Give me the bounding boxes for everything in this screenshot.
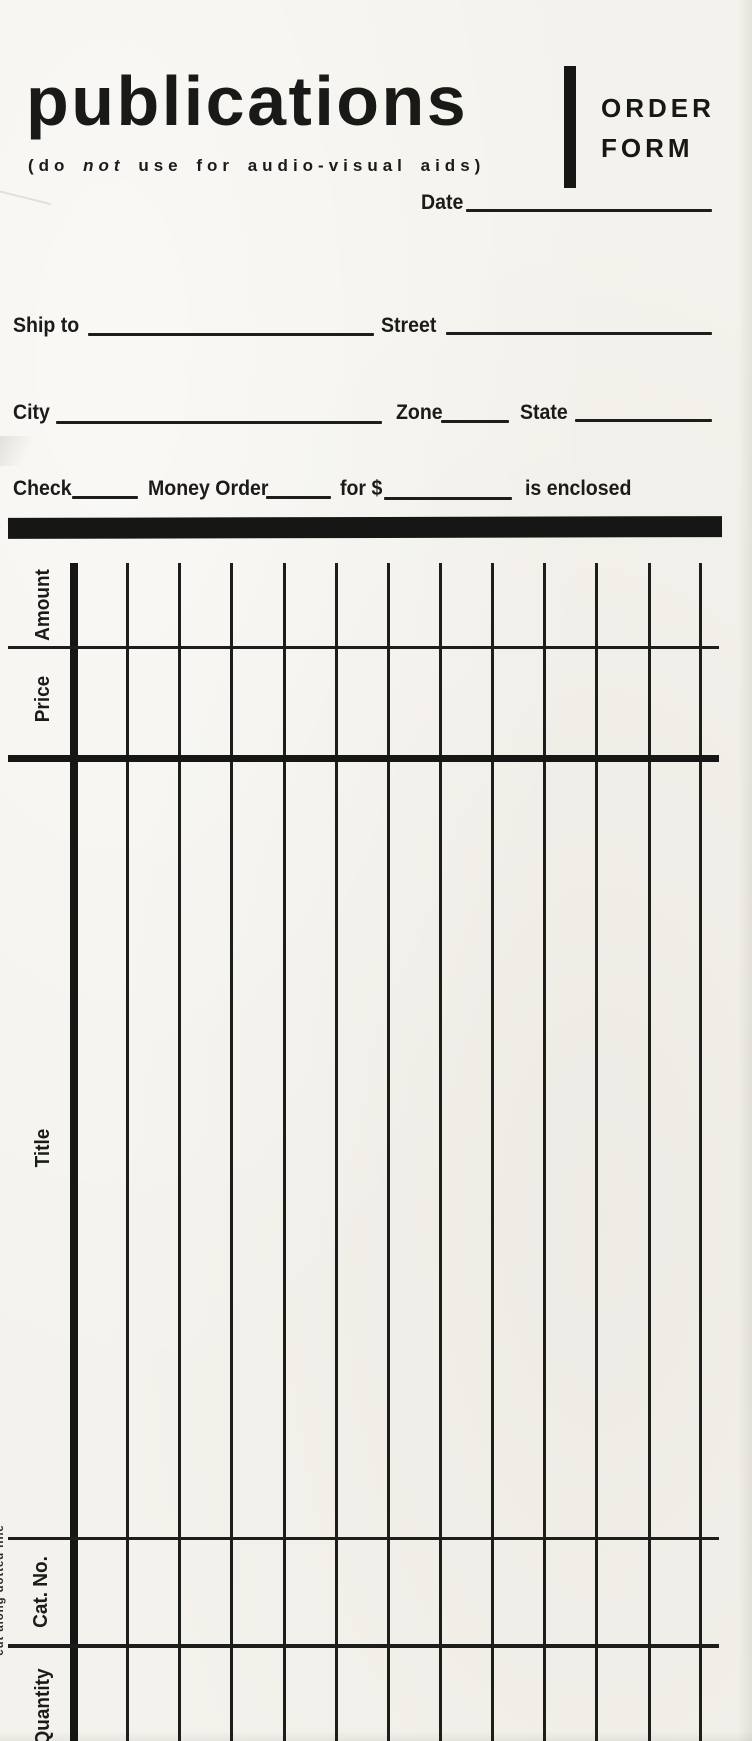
table-grid-line-horizontal [8,646,719,649]
column-label-title: Title [33,1129,53,1168]
table-grid-line-vertical [387,563,390,1741]
table-grid-line-horizontal [8,1644,719,1648]
column-label-price: Price [33,676,53,722]
order-form-page: publications (do not use for audio-visua… [0,0,752,1741]
table-grid-line-vertical [491,563,494,1741]
table-grid-line-vertical [335,563,338,1741]
column-label-cat-no: Cat. No. [31,1556,51,1628]
table-grid-line-vertical [595,563,598,1741]
table-grid-line-vertical [126,563,129,1741]
table-grid-line-heavy-vertical [70,563,78,1741]
order-table [0,0,752,1741]
table-grid-line-vertical [283,563,286,1741]
column-label-amount: Amount [33,569,53,641]
table-grid-line-vertical [439,563,442,1741]
edge-note: cut along dotted line [0,1524,5,1655]
table-grid-line-horizontal [8,1537,719,1540]
table-grid-line-vertical [230,563,233,1741]
table-grid-line-heavy-horizontal [8,755,719,762]
table-grid-line-vertical [178,563,181,1741]
table-grid-line-vertical [699,563,702,1741]
table-grid-line-vertical [648,563,651,1741]
column-label-quantity: Quantity [33,1668,53,1741]
table-grid-line-vertical [543,563,546,1741]
